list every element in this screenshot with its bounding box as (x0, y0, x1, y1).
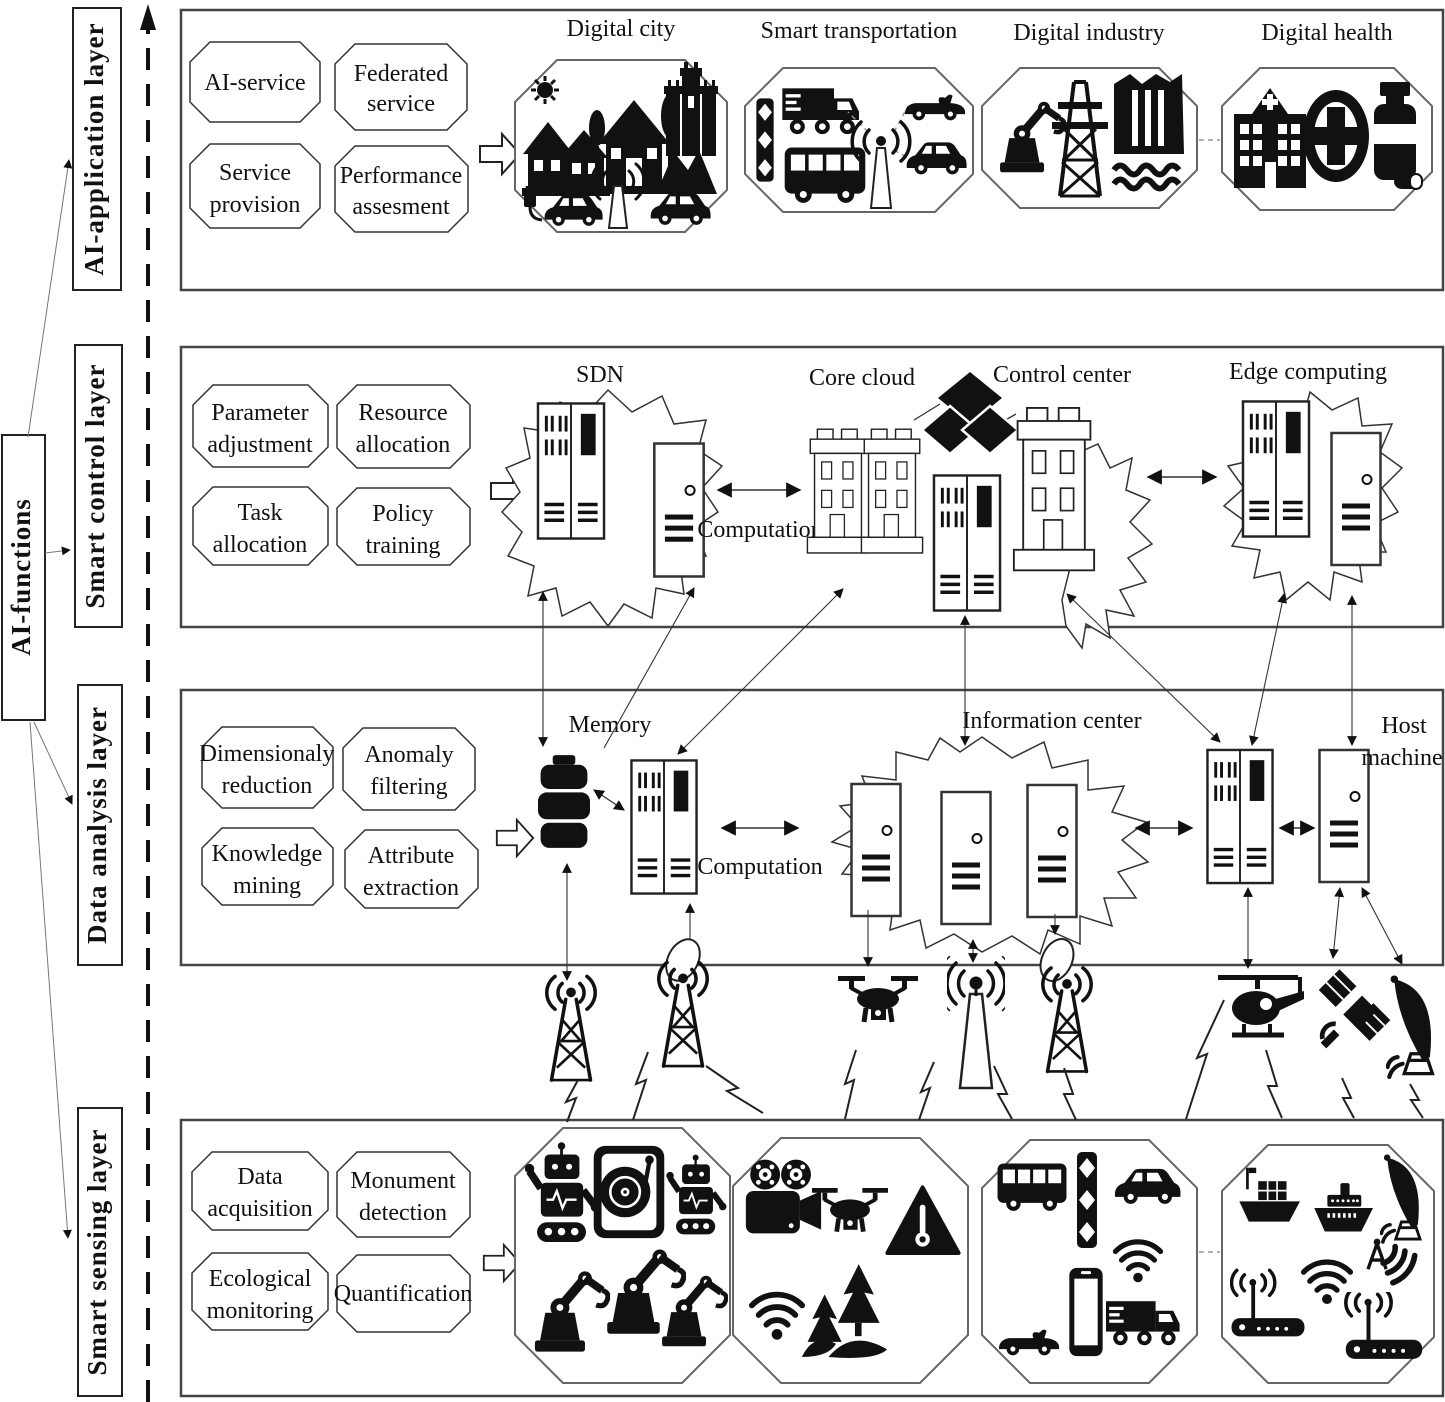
smartphone-icon (1069, 1268, 1102, 1356)
svg-text:Knowledge: Knowledge (212, 841, 323, 867)
group-ships-routers (1222, 1145, 1434, 1383)
building-icon (861, 429, 922, 553)
turntable-icon (594, 1146, 665, 1238)
database-icon (538, 755, 590, 848)
ai-functions-label: AI-functions (6, 498, 36, 656)
server-tower-icon (1332, 433, 1381, 565)
server-tower-icon (942, 792, 991, 924)
movie-camera-icon (746, 1160, 821, 1234)
svg-text:training: training (366, 533, 441, 559)
svg-text:service: service (367, 91, 435, 117)
svg-text:Digital industry: Digital industry (1013, 20, 1164, 46)
svg-text:Attribute: Attribute (368, 843, 455, 869)
information-center-label: Information center (962, 708, 1141, 734)
svg-text:monitoring: monitoring (207, 1298, 314, 1324)
layer-label-sensing: Smart sensing layer (78, 1108, 122, 1396)
svg-text:Data analysis layer: Data analysis layer (82, 706, 112, 944)
traffic-light-icon (756, 98, 773, 181)
edge-computing-label: Edge computing (1229, 359, 1387, 385)
svg-text:filtering: filtering (370, 774, 447, 800)
svg-text:mining: mining (233, 873, 301, 899)
svg-text:adjustment: adjustment (207, 432, 313, 458)
traffic-light-icon (1077, 1152, 1097, 1248)
host-machine-label-2: machine (1361, 745, 1442, 771)
svg-text:Digital city: Digital city (567, 16, 676, 42)
fn-ai-service: AI-service (204, 70, 305, 96)
medical-cross-icon (1303, 90, 1369, 182)
svg-text:Task: Task (238, 500, 283, 526)
svg-text:Smart transportation: Smart transportation (761, 18, 958, 44)
sun-icon (531, 76, 559, 104)
svg-text:Service: Service (219, 160, 291, 186)
svg-text:allocation: allocation (213, 532, 308, 558)
building-icon (1014, 408, 1094, 570)
building-icon (807, 429, 868, 553)
group-robots (515, 1128, 730, 1383)
layer-label-analysis: Data analysis layer (78, 685, 122, 965)
svg-text:Data: Data (237, 1164, 283, 1190)
svg-text:Smart control layer: Smart control layer (80, 364, 110, 609)
host-machine-label-1: Host (1381, 713, 1427, 739)
svg-text:detection: detection (359, 1200, 447, 1226)
server-tower-icon (654, 444, 703, 577)
svg-text:acquisition: acquisition (207, 1196, 312, 1222)
svg-text:Performance: Performance (340, 163, 463, 189)
svg-text:provision: provision (210, 192, 301, 218)
svg-text:extraction: extraction (363, 875, 459, 901)
svg-text:Resource: Resource (358, 400, 447, 426)
svg-text:reduction: reduction (222, 773, 313, 799)
analysis-computation-label: Computation (697, 854, 822, 880)
control-center-label: Control center (993, 362, 1131, 388)
layer-label-control: Smart control layer (75, 345, 122, 627)
svg-text:Dimensionaly: Dimensionaly (200, 741, 335, 767)
svg-text:Parameter: Parameter (211, 400, 308, 426)
svg-text:Quantification: Quantification (334, 1281, 473, 1307)
svg-text:allocation: allocation (356, 432, 451, 458)
svg-text:Monument: Monument (350, 1168, 456, 1194)
architecture-diagram: AI-functions AI-application layer Smart … (0, 0, 1445, 1402)
memory-label: Memory (569, 712, 652, 738)
group-monitoring (733, 1138, 968, 1383)
svg-text:Policy: Policy (372, 501, 433, 527)
svg-text:Ecological: Ecological (209, 1266, 312, 1292)
svg-text:Digital health: Digital health (1261, 20, 1392, 46)
group-vehicles (982, 1140, 1197, 1383)
core-cloud-label: Core cloud (809, 365, 915, 391)
ai-functions-box: AI-functions (2, 435, 45, 720)
svg-text:Smart sensing layer: Smart sensing layer (82, 1129, 112, 1376)
control-computation-label: Computation (697, 517, 822, 543)
server-rack-icon (1207, 750, 1272, 883)
svg-text:AI-application layer: AI-application layer (79, 22, 109, 275)
server-rack-icon (631, 760, 696, 893)
server-rack-icon (538, 403, 604, 538)
layer-label-application: AI-application layer (73, 8, 121, 290)
server-tower-icon (1028, 785, 1077, 917)
server-rack-icon (1243, 401, 1309, 536)
server-rack-icon (934, 475, 1000, 610)
sdn-label: SDN (576, 362, 624, 388)
server-tower-icon (852, 784, 901, 916)
svg-text:assesment: assesment (352, 194, 450, 220)
svg-text:Anomaly: Anomaly (364, 742, 453, 768)
svg-text:Federated: Federated (354, 61, 449, 87)
